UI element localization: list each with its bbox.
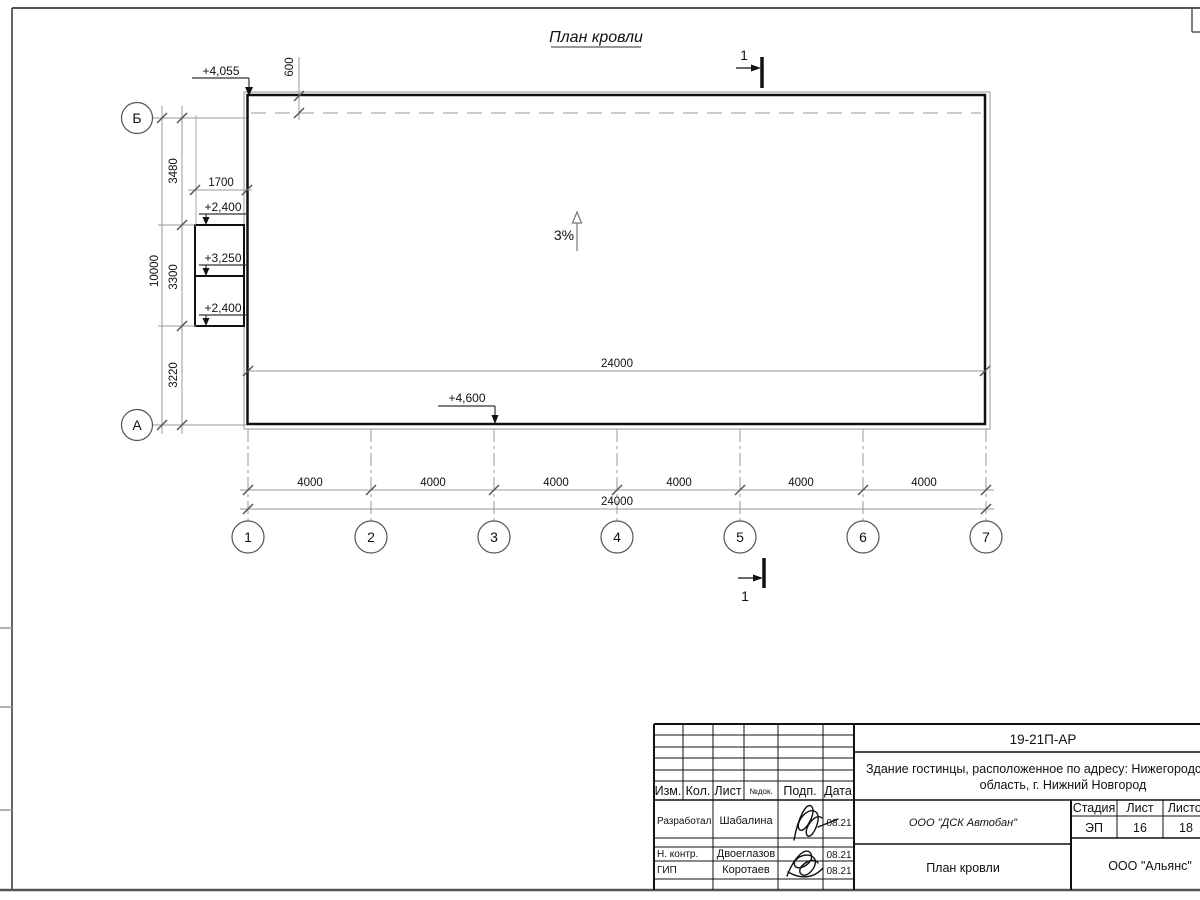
- axis-label-2: 2: [367, 529, 375, 545]
- dim-left-seg-1: 3480: [168, 158, 180, 184]
- building-outline: [244, 92, 990, 429]
- axis-label-5: 5: [736, 529, 744, 545]
- project-name-line2: область, г. Нижний Новгород: [980, 778, 1147, 792]
- sheet-frame: [0, 8, 1200, 890]
- axis-label-6: 6: [859, 529, 867, 545]
- th-kol: Кол.: [686, 784, 711, 798]
- elev-porch-lower: +2,400: [204, 301, 241, 315]
- sheet-label: Лист: [1126, 801, 1153, 815]
- title-block-text: Изм. Кол. Лист №док. Подп. Дата Разработ…: [655, 732, 1200, 877]
- name-ncontrol: Двоеглазов: [717, 848, 776, 860]
- section-mark-top: 1: [736, 47, 762, 88]
- roof-plan-drawing: План кровли 24000 10000 34: [0, 0, 1200, 900]
- section-label-top: 1: [740, 47, 748, 63]
- dim-seg-5: 4000: [788, 477, 814, 489]
- dim-roof-inner-width: 24000: [601, 358, 633, 370]
- dim-seg-2: 4000: [420, 477, 446, 489]
- th-podp: Подп.: [783, 784, 816, 798]
- dim-seg-6: 4000: [911, 477, 937, 489]
- axis-label-7: 7: [982, 529, 990, 545]
- row-axis-bubbles: Б А: [122, 103, 153, 441]
- th-ndok: №док.: [749, 787, 772, 796]
- date-gip: 08.21: [826, 866, 851, 877]
- sheets-label: Листов: [1168, 801, 1200, 815]
- contractor-company: ООО "ДСК Автобан": [909, 817, 1018, 829]
- name-developer: Шабалина: [719, 815, 773, 827]
- elev-roof-low: +4,600: [448, 391, 485, 405]
- view-title: План кровли: [549, 29, 643, 46]
- column-axis-bubbles: 1 2 3 4 5 6 7: [232, 521, 1002, 553]
- elev-top-left: +4,055: [202, 64, 239, 78]
- section-mark-bottom: 1: [738, 558, 764, 604]
- drawing-sheet: План кровли 24000 10000 34: [0, 0, 1200, 900]
- elev-porch-upper: +2,400: [204, 200, 241, 214]
- project-name-line1: Здание гостинцы, расположенное по адресу…: [866, 762, 1200, 776]
- section-label-bottom: 1: [741, 588, 749, 604]
- dim-parapet-offset: 600: [284, 57, 296, 76]
- fold-marks: [0, 628, 12, 810]
- design-org: ООО "Альянс": [1108, 859, 1192, 873]
- stage-label: Стадия: [1073, 801, 1116, 815]
- date-developer: 08.21: [826, 818, 851, 829]
- role-gip: ГИП: [657, 865, 677, 876]
- sheets-total: 18: [1179, 821, 1193, 835]
- dim-left-total: 10000: [149, 255, 161, 287]
- date-ncontrol: 08.21: [826, 850, 851, 861]
- doc-code: 19-21П-АР: [1010, 732, 1077, 747]
- th-data: Дата: [824, 784, 852, 798]
- dim-seg-4: 4000: [666, 477, 692, 489]
- axis-label-b: Б: [132, 110, 141, 126]
- dim-porch-width: 1700: [208, 177, 234, 189]
- stage-value: ЭП: [1085, 821, 1103, 835]
- dim-left-seg-2: 3300: [168, 264, 180, 290]
- dim-seg-1: 4000: [297, 477, 323, 489]
- axis-label-4: 4: [613, 529, 621, 545]
- dim-seg-3: 4000: [543, 477, 569, 489]
- role-ncontrol: Н. контр.: [657, 849, 698, 860]
- th-izm: Изм.: [655, 784, 682, 798]
- name-gip: Коротаев: [722, 864, 770, 876]
- sheet-number: 16: [1133, 821, 1147, 835]
- dim-left-seg-3: 3220: [168, 362, 180, 388]
- axis-label-a: А: [132, 417, 142, 433]
- elev-porch-mid: +3,250: [204, 251, 241, 265]
- dim-bottom-total: 24000: [601, 496, 633, 508]
- axis-label-1: 1: [244, 529, 252, 545]
- drawing-title: План кровли: [926, 861, 1000, 875]
- th-list: Лист: [714, 784, 741, 798]
- signature-2: [787, 851, 823, 877]
- slope-label: 3%: [554, 227, 574, 243]
- role-developer: Разработал: [657, 815, 712, 827]
- axis-label-3: 3: [490, 529, 498, 545]
